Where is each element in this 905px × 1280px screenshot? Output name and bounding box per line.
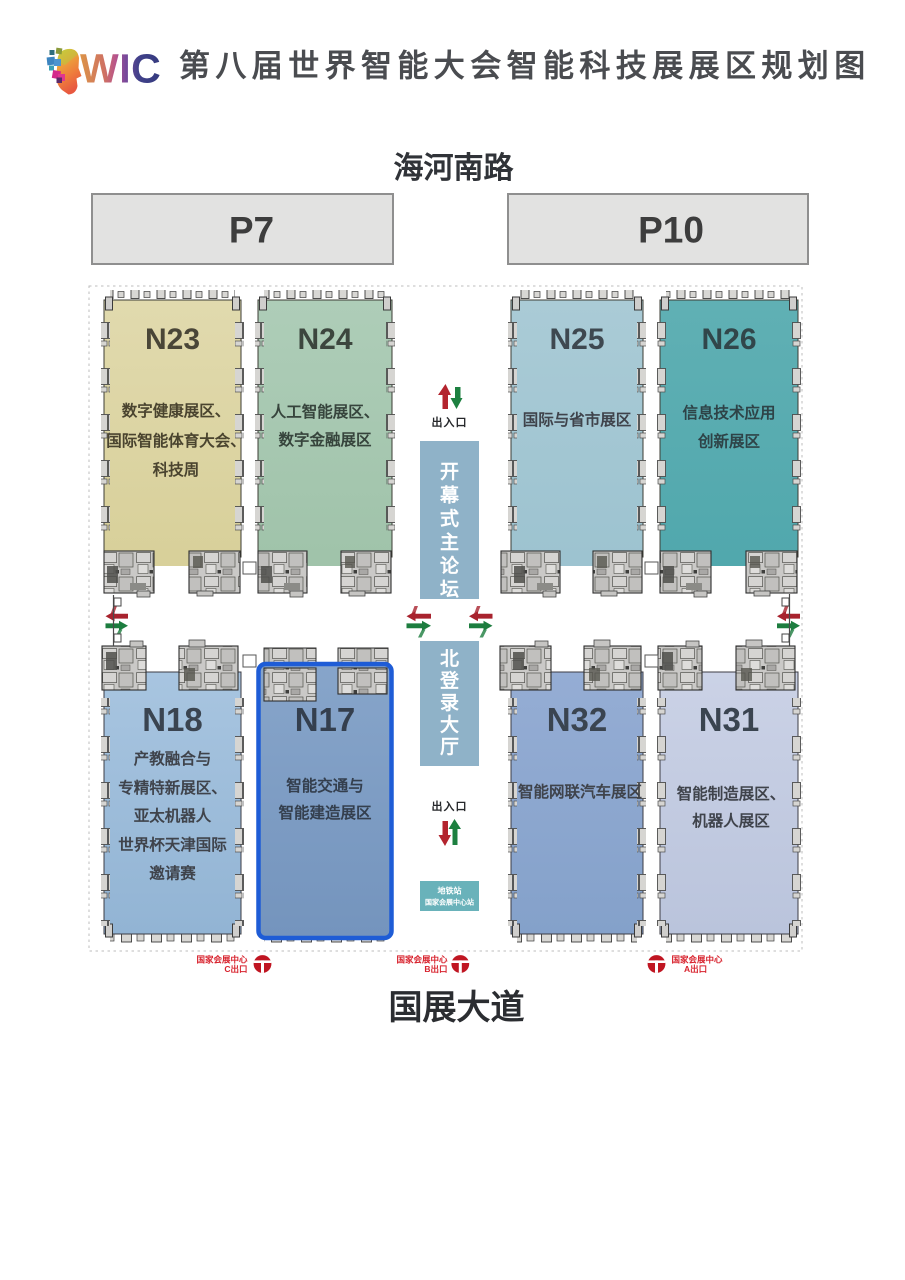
svg-text:世界杯天津国际: 世界杯天津国际 xyxy=(118,835,227,854)
svg-text:智能制造展区、: 智能制造展区、 xyxy=(677,784,786,803)
svg-text:智能交通与: 智能交通与 xyxy=(286,776,364,795)
svg-text:国际智能体育大会、: 国际智能体育大会、 xyxy=(106,431,246,450)
svg-text:智能网联汽车展区: 智能网联汽车展区 xyxy=(518,782,643,801)
svg-text:国家会展中心: 国家会展中心 xyxy=(396,955,448,965)
svg-text:信息技术应用: 信息技术应用 xyxy=(682,403,775,422)
svg-text:亚太机器人: 亚太机器人 xyxy=(134,806,212,825)
svg-text:录: 录 xyxy=(440,693,459,714)
svg-text:科技周: 科技周 xyxy=(153,460,200,479)
svg-text:数字金融展区: 数字金融展区 xyxy=(278,430,372,449)
svg-text:第八届世界智能大会智能科技展展区规划图: 第八届世界智能大会智能科技展展区规划图 xyxy=(179,49,871,84)
svg-text:N32: N32 xyxy=(547,701,608,738)
svg-text:出入口: 出入口 xyxy=(432,415,468,429)
svg-text:N23: N23 xyxy=(145,323,200,356)
svg-text:B出口: B出口 xyxy=(424,964,447,974)
svg-text:大: 大 xyxy=(440,713,459,736)
svg-text:国展大道: 国展大道 xyxy=(389,989,525,1027)
svg-text:海河南路: 海河南路 xyxy=(394,152,515,185)
svg-text:坛: 坛 xyxy=(440,579,459,601)
svg-text:厅: 厅 xyxy=(440,737,459,758)
svg-text:开: 开 xyxy=(440,462,459,483)
svg-text:国家会展中心: 国家会展中心 xyxy=(196,955,248,965)
svg-text:国际与省市展区: 国际与省市展区 xyxy=(523,410,632,429)
svg-text:北: 北 xyxy=(440,648,459,670)
svg-text:幕: 幕 xyxy=(439,485,460,507)
svg-text:产教融合与: 产教融合与 xyxy=(134,749,212,768)
svg-text:C出口: C出口 xyxy=(224,964,247,974)
svg-text:N25: N25 xyxy=(549,323,604,356)
svg-text:N18: N18 xyxy=(142,701,203,738)
svg-text:P10: P10 xyxy=(638,210,704,251)
svg-text:WIC: WIC xyxy=(80,46,161,92)
svg-text:出入口: 出入口 xyxy=(432,799,468,813)
svg-text:主: 主 xyxy=(440,532,459,554)
svg-text:智能建造展区: 智能建造展区 xyxy=(278,803,372,822)
svg-text:论: 论 xyxy=(440,554,460,577)
svg-text:数字健康展区、: 数字健康展区、 xyxy=(122,401,231,420)
svg-text:式: 式 xyxy=(440,507,459,530)
svg-text:创新展区: 创新展区 xyxy=(697,432,761,451)
svg-text:登: 登 xyxy=(439,669,460,692)
svg-text:机器人展区: 机器人展区 xyxy=(692,811,770,830)
svg-text:A出口: A出口 xyxy=(684,964,707,974)
svg-text:N31: N31 xyxy=(699,701,760,738)
svg-text:地铁站: 地铁站 xyxy=(438,886,462,896)
svg-text:N17: N17 xyxy=(295,701,356,738)
svg-text:P7: P7 xyxy=(229,210,274,251)
svg-text:N26: N26 xyxy=(701,323,756,356)
svg-text:N24: N24 xyxy=(297,323,352,356)
svg-text:国家会展中心站: 国家会展中心站 xyxy=(425,898,474,907)
svg-text:人工智能展区、: 人工智能展区、 xyxy=(271,402,380,421)
svg-text:国家会展中心: 国家会展中心 xyxy=(672,955,724,965)
svg-text:邀请赛: 邀请赛 xyxy=(149,864,196,883)
svg-text:专精特新展区、: 专精特新展区、 xyxy=(118,778,227,797)
